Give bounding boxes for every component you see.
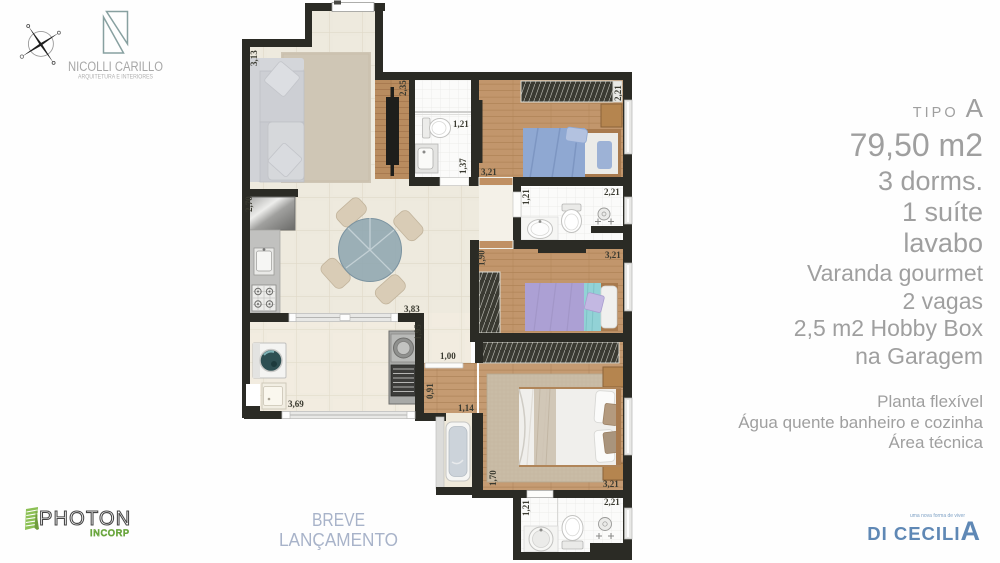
- svg-text:LANÇAMENTO: LANÇAMENTO: [279, 529, 398, 550]
- svg-text:0,91: 0,91: [425, 383, 435, 399]
- svg-text:1,21: 1,21: [521, 500, 531, 516]
- svg-text:ARQUITETURA E INTERIORES: ARQUITETURA E INTERIORES: [78, 74, 153, 81]
- svg-text:INCORP: INCORP: [90, 528, 130, 538]
- svg-text:2,21: 2,21: [613, 85, 623, 101]
- svg-text:2,70: 2,70: [244, 196, 254, 212]
- svg-text:3,83: 3,83: [404, 304, 420, 314]
- svg-text:2,21: 2,21: [604, 497, 620, 507]
- svg-text:3,21: 3,21: [603, 479, 619, 489]
- svg-text:BREVE: BREVE: [312, 509, 365, 530]
- svg-text:3,21: 3,21: [605, 250, 621, 260]
- svg-text:PHOTON: PHOTON: [39, 508, 131, 530]
- svg-text:3,21: 3,21: [481, 167, 497, 177]
- svg-text:1,70: 1,70: [488, 470, 498, 486]
- svg-text:1,90: 1,90: [477, 250, 487, 266]
- svg-text:1,95: 1,95: [413, 324, 423, 340]
- svg-text:2,21: 2,21: [604, 187, 620, 197]
- svg-text:3,13: 3,13: [249, 50, 259, 66]
- svg-text:2,35: 2,35: [398, 80, 408, 96]
- svg-text:1,14: 1,14: [458, 403, 474, 413]
- svg-text:1,00: 1,00: [440, 351, 456, 361]
- svg-text:3,69: 3,69: [288, 399, 304, 409]
- svg-text:1,21: 1,21: [521, 189, 531, 205]
- svg-text:1,21: 1,21: [453, 119, 469, 129]
- svg-text:1,37: 1,37: [458, 158, 468, 174]
- svg-text:NICOLLI CARILLO: NICOLLI CARILLO: [68, 59, 163, 74]
